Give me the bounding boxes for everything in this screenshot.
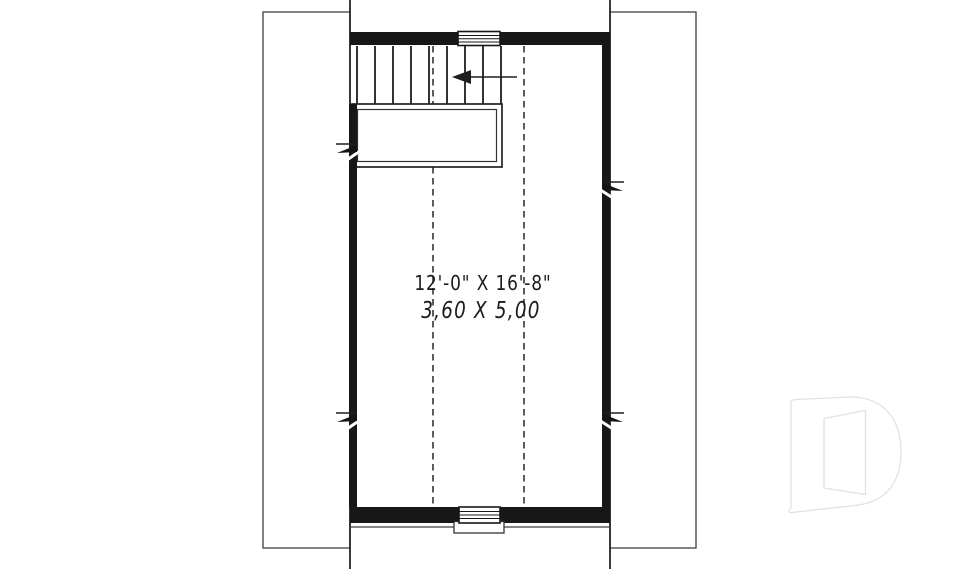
floor-plan-canvas: 12'-0" X 16'-8" 3,60 X 5,00 xyxy=(0,0,960,569)
break-wedge xyxy=(337,414,357,422)
staircase xyxy=(357,46,517,105)
left-roof-plane xyxy=(263,12,350,548)
left-arrow-icon xyxy=(452,70,471,84)
right-wall xyxy=(602,45,610,507)
dimension-imperial-text: 12'-0" X 16'-8" xyxy=(414,273,551,296)
left-wall xyxy=(349,104,357,507)
right-roof-plane xyxy=(610,12,696,548)
stair-landing xyxy=(352,104,502,167)
bottom-window xyxy=(454,507,504,533)
landing-outer-rail xyxy=(352,104,502,167)
floor-plan-drawing: 12'-0" X 16'-8" 3,60 X 5,00 xyxy=(0,0,960,569)
room-dimensions-label: 12'-0" X 16'-8" 3,60 X 5,00 xyxy=(414,273,551,324)
logo-door-shape xyxy=(824,411,866,495)
stair-direction-arrow xyxy=(452,70,517,84)
drummond-d-logo xyxy=(789,397,901,513)
top-window xyxy=(458,32,500,46)
stair-treads xyxy=(357,46,501,105)
dimension-metric-text: 3,60 X 5,00 xyxy=(421,297,540,324)
break-wedge xyxy=(603,414,623,422)
